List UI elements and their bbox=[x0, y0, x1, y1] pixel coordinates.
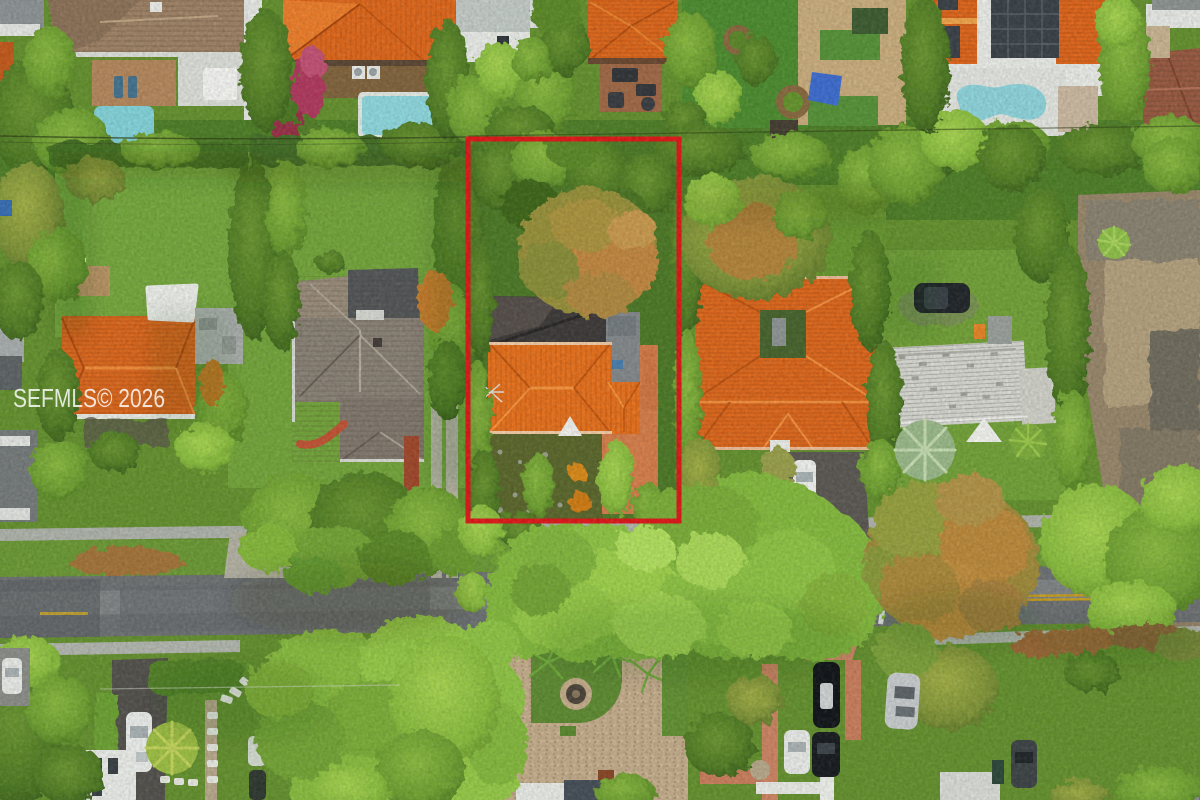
svg-text:SEFMLS© 2026: SEFMLS© 2026 bbox=[13, 383, 165, 413]
